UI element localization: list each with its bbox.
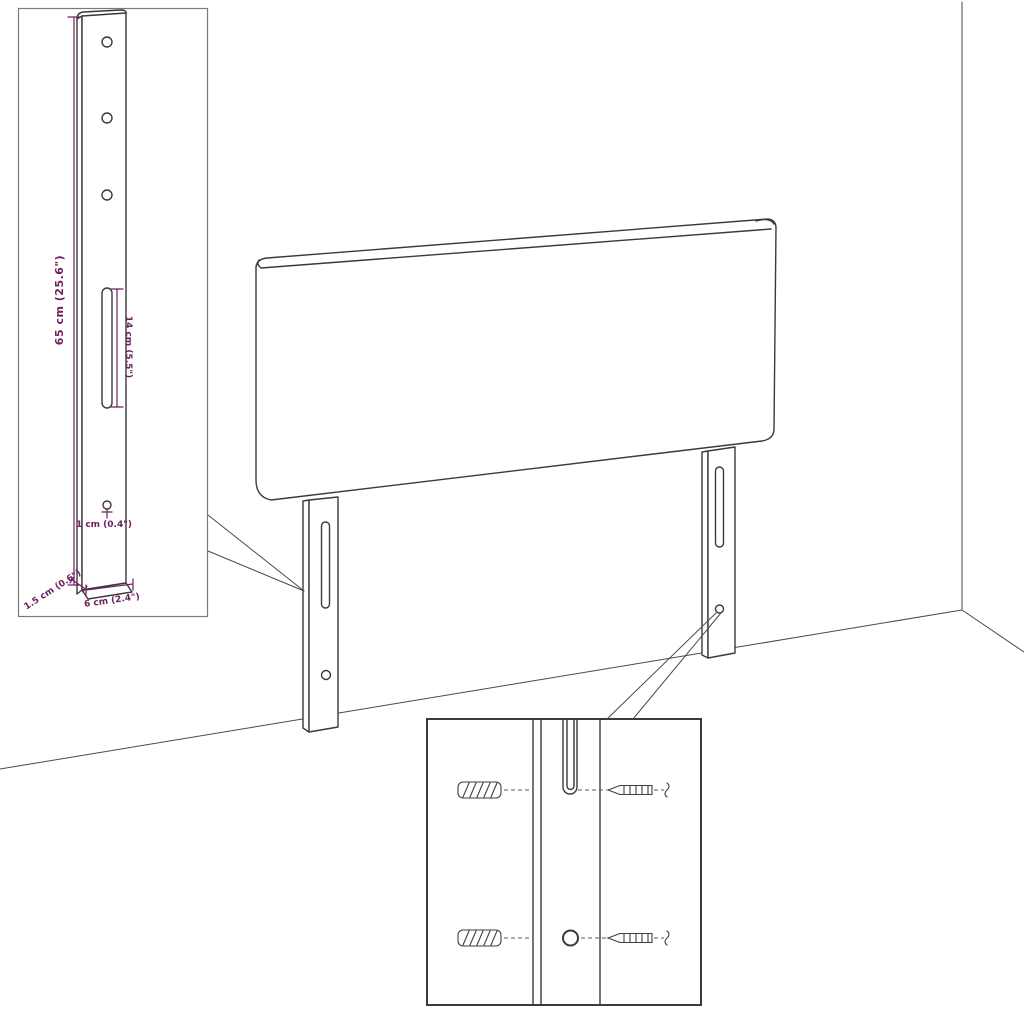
inset-frame [427, 719, 701, 1005]
right-leg-hole [716, 605, 724, 613]
right-leg-slot [716, 467, 724, 547]
inset-leg-hole-3 [102, 190, 112, 200]
dimension-height-label: 65 cm (25.6") [53, 255, 66, 345]
left-leg-hole [322, 671, 331, 680]
leg-detail-callout [208, 515, 304, 591]
floor-line-right [962, 610, 1024, 652]
right-leg [702, 447, 735, 658]
callout-line [633, 614, 721, 720]
callout-line [208, 515, 304, 591]
inset-leg-hole-1 [102, 37, 112, 47]
headboard-panel [256, 219, 776, 500]
mounting-detail-inset [427, 719, 701, 1005]
product-diagram: 65 cm (25.6") 14 cm (5.5") 1 cm (0.4") 6… [0, 0, 1024, 1024]
callout-line [208, 551, 304, 591]
inset-leg-side-face [77, 16, 82, 594]
dimension-hole-label: 1 cm (0.4") [76, 520, 132, 530]
left-leg [303, 497, 338, 732]
inset-leg-small-hole [103, 501, 111, 509]
right-leg-side-face [702, 451, 708, 658]
left-leg-slot [322, 522, 330, 608]
dimension-slot-label: 14 cm (5.5") [123, 316, 133, 378]
panel-face [256, 219, 776, 500]
inset-leg-slot [102, 288, 112, 408]
left-leg-side-face [303, 500, 309, 732]
leg-detail-inset: 65 cm (25.6") 14 cm (5.5") 1 cm (0.4") 6… [19, 9, 208, 617]
diagram-canvas: 65 cm (25.6") 14 cm (5.5") 1 cm (0.4") 6… [0, 0, 1024, 1024]
inset-leg-hole-2 [102, 113, 112, 123]
